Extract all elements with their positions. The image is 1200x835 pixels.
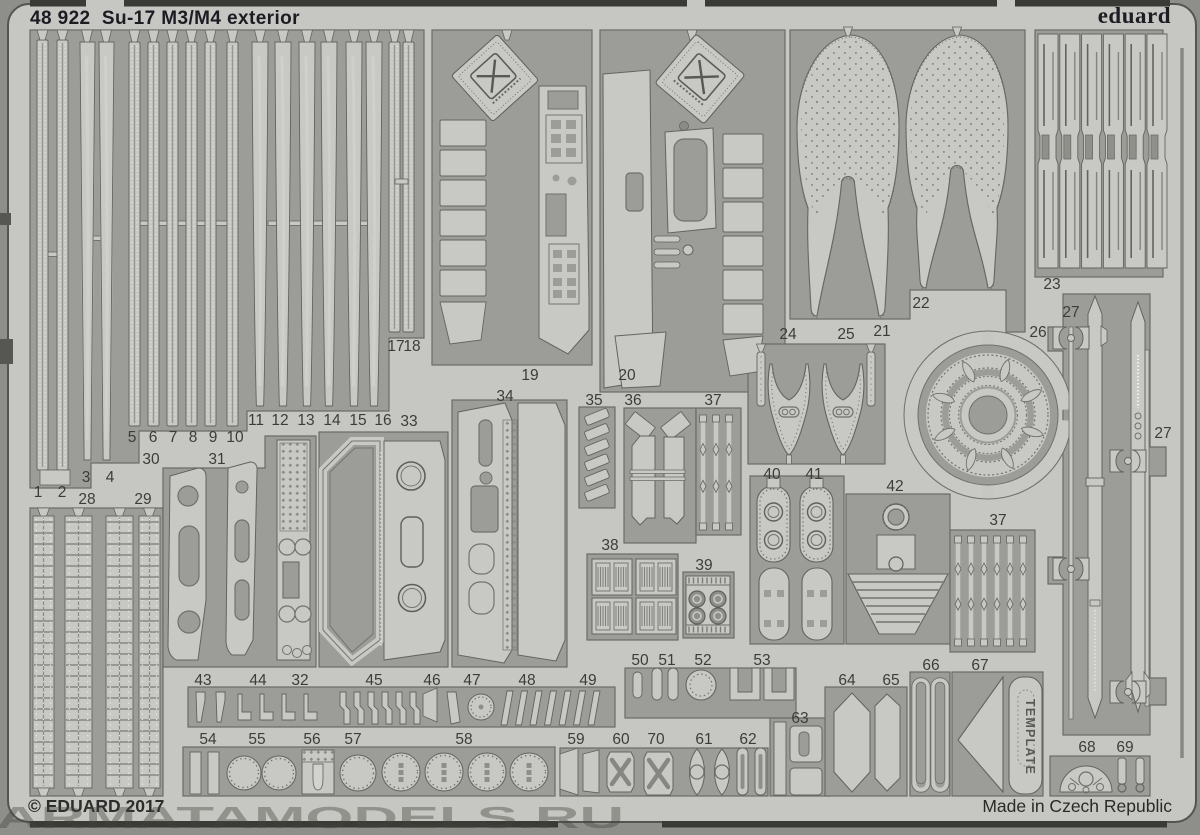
svg-text:56: 56 — [303, 731, 320, 748]
svg-text:61: 61 — [695, 731, 712, 748]
svg-text:10: 10 — [226, 429, 244, 446]
svg-text:37: 37 — [989, 512, 1006, 529]
svg-text:65: 65 — [882, 672, 899, 689]
svg-text:eduard: eduard — [1098, 3, 1171, 28]
svg-text:57: 57 — [344, 731, 361, 748]
svg-text:32: 32 — [291, 672, 308, 689]
svg-text:14: 14 — [323, 412, 341, 429]
svg-text:55: 55 — [248, 731, 265, 748]
svg-text:70: 70 — [647, 731, 665, 748]
svg-text:2: 2 — [58, 484, 67, 501]
svg-text:Made in Czech Republic: Made in Czech Republic — [982, 796, 1172, 816]
svg-text:ARMATAMODELS.RU: ARMATAMODELS.RU — [0, 800, 624, 830]
svg-text:45: 45 — [365, 672, 382, 689]
svg-text:5: 5 — [128, 429, 137, 446]
svg-text:30: 30 — [142, 451, 160, 468]
svg-text:17: 17 — [387, 338, 404, 355]
svg-text:44: 44 — [249, 672, 267, 689]
svg-text:67: 67 — [971, 657, 988, 674]
svg-text:16: 16 — [374, 412, 391, 429]
svg-text:28: 28 — [78, 491, 95, 508]
svg-text:25: 25 — [837, 326, 854, 343]
svg-text:26: 26 — [1029, 324, 1046, 341]
svg-text:42: 42 — [886, 478, 903, 495]
svg-text:62: 62 — [739, 731, 756, 748]
svg-text:3: 3 — [82, 469, 91, 486]
svg-text:40: 40 — [763, 466, 781, 483]
svg-text:52: 52 — [694, 652, 711, 669]
svg-text:48: 48 — [518, 672, 535, 689]
svg-text:13: 13 — [297, 412, 314, 429]
svg-text:22: 22 — [912, 295, 929, 312]
svg-text:27: 27 — [1154, 425, 1171, 442]
svg-text:51: 51 — [658, 652, 675, 669]
svg-text:46: 46 — [423, 672, 440, 689]
svg-text:4: 4 — [106, 469, 115, 486]
svg-text:21: 21 — [873, 323, 890, 340]
svg-text:36: 36 — [624, 392, 641, 409]
svg-text:6: 6 — [149, 429, 158, 446]
svg-text:39: 39 — [695, 557, 712, 574]
svg-text:68: 68 — [1078, 739, 1095, 756]
svg-text:59: 59 — [567, 731, 584, 748]
svg-text:47: 47 — [463, 672, 480, 689]
svg-text:37: 37 — [704, 392, 721, 409]
svg-text:TEMPLATE: TEMPLATE — [1023, 699, 1037, 775]
svg-text:53: 53 — [753, 652, 770, 669]
svg-text:33: 33 — [400, 413, 417, 430]
svg-text:15: 15 — [349, 412, 366, 429]
svg-text:66: 66 — [922, 657, 939, 674]
svg-text:49: 49 — [579, 672, 596, 689]
svg-text:31: 31 — [208, 451, 225, 468]
svg-text:60: 60 — [612, 731, 630, 748]
svg-text:54: 54 — [199, 731, 217, 748]
svg-text:48 922 Su-17 M3/M4 exterior: 48 922 Su-17 M3/M4 exterior — [30, 8, 300, 29]
svg-text:11: 11 — [248, 412, 264, 429]
svg-text:64: 64 — [838, 672, 856, 689]
svg-text:1: 1 — [34, 484, 43, 501]
svg-text:29: 29 — [134, 491, 151, 508]
svg-text:34: 34 — [496, 388, 514, 405]
svg-text:9: 9 — [209, 429, 218, 446]
svg-text:35: 35 — [585, 392, 602, 409]
svg-text:19: 19 — [521, 367, 538, 384]
svg-text:43: 43 — [194, 672, 211, 689]
svg-text:27: 27 — [1062, 304, 1079, 321]
svg-text:38: 38 — [601, 537, 618, 554]
svg-text:23: 23 — [1043, 276, 1060, 293]
svg-text:24: 24 — [779, 326, 797, 343]
svg-text:20: 20 — [618, 367, 636, 384]
svg-text:18: 18 — [403, 338, 420, 355]
svg-text:50: 50 — [631, 652, 649, 669]
svg-text:69: 69 — [1116, 739, 1133, 756]
svg-text:7: 7 — [169, 429, 178, 446]
svg-text:41: 41 — [805, 466, 822, 483]
svg-text:58: 58 — [455, 731, 472, 748]
svg-text:8: 8 — [189, 429, 198, 446]
svg-text:63: 63 — [791, 710, 808, 727]
svg-text:12: 12 — [271, 412, 288, 429]
